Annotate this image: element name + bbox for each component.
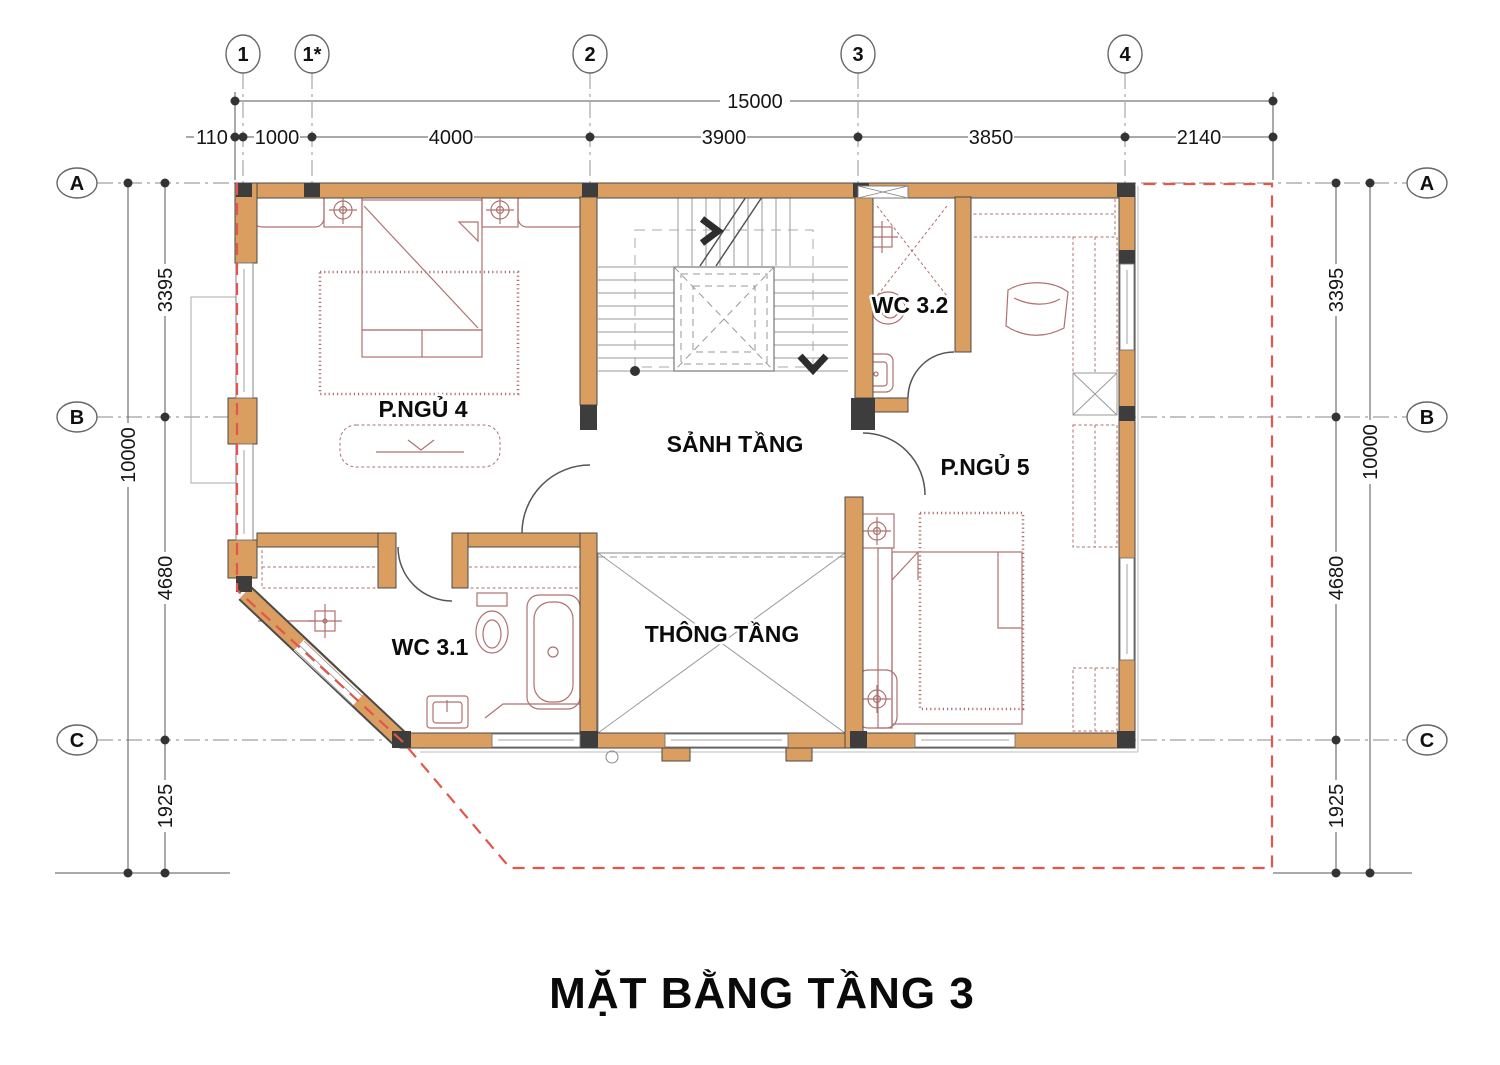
room-label-bedroom5: P.NGỦ 5 — [940, 452, 1029, 480]
svg-text:15000: 15000 — [727, 91, 783, 113]
grid-bubble-row-b-right: B — [1407, 402, 1447, 432]
room-label-hall: SẢNH TẦNG — [667, 429, 804, 457]
svg-text:2140: 2140 — [1177, 127, 1222, 149]
grid-bubble-row-a-right: A — [1407, 168, 1447, 198]
wall-pier-tab — [786, 748, 812, 761]
svg-text:3900: 3900 — [702, 127, 747, 149]
wall-pier — [378, 533, 396, 588]
wall-pier-tab — [662, 748, 690, 761]
grid-bubble-row-c-left: C — [57, 725, 97, 755]
wall-top — [235, 183, 1135, 198]
svg-text:10000: 10000 — [1360, 424, 1382, 480]
balcony-outline — [191, 297, 236, 483]
svg-text:4000: 4000 — [429, 127, 474, 149]
grid-bubble-col-4: 4 — [1108, 35, 1142, 73]
svg-text:4680: 4680 — [1326, 556, 1348, 601]
svg-text:10000: 10000 — [118, 427, 140, 483]
room-label-wc32: WC 3.2 — [872, 292, 949, 318]
svg-text:3: 3 — [852, 44, 863, 66]
wall-g3-upper — [855, 197, 873, 398]
drawing-title: MẶT BẰNG TẦNG 3 — [549, 968, 975, 1018]
grid-bubble-row-c-right: C — [1407, 725, 1447, 755]
grid-bubble-col-2: 2 — [573, 35, 607, 73]
dimension-total-width: 15000 — [720, 90, 790, 113]
vent-icon — [858, 186, 908, 198]
wall-g2-lower — [580, 533, 597, 748]
svg-text:C: C — [1420, 730, 1434, 752]
svg-text:4680: 4680 — [155, 556, 177, 601]
grid-bubble-row-b-left: B — [57, 402, 97, 432]
svg-text:3850: 3850 — [969, 127, 1014, 149]
room-label-bedroom4: P.NGỦ 4 — [378, 394, 467, 422]
wall-pier — [452, 533, 468, 588]
wall-left-pier — [228, 398, 257, 444]
svg-text:A: A — [70, 173, 84, 195]
grid-bubble-col-1s: 1* — [295, 35, 329, 73]
svg-text:B: B — [70, 407, 84, 429]
svg-text:4: 4 — [1119, 44, 1131, 66]
svg-text:110: 110 — [196, 127, 228, 149]
wall-closet-row — [452, 533, 580, 547]
svg-text:1*: 1* — [303, 44, 322, 66]
floor-drain-icon — [606, 751, 618, 763]
wall-g3-lower — [845, 497, 863, 748]
svg-text:1000: 1000 — [255, 127, 300, 149]
stair-start-dot — [630, 366, 640, 376]
svg-text:1: 1 — [237, 44, 248, 66]
wall-wc32-bottom — [873, 398, 908, 412]
grid-bubble-col-1: 1 — [226, 35, 260, 73]
dimension-right-segments: 3395 4680 1925 10000 — [1325, 264, 1382, 832]
wall-g2-upper — [580, 197, 597, 405]
svg-text:3395: 3395 — [1326, 268, 1348, 313]
svg-text:1925: 1925 — [155, 784, 177, 829]
svg-text:2: 2 — [584, 44, 595, 66]
svg-text:B: B — [1420, 407, 1434, 429]
svg-text:1925: 1925 — [1326, 784, 1348, 829]
dimension-left-segments: 3395 4680 1925 10000 — [117, 264, 177, 832]
grid-bubble-row-a-left: A — [57, 168, 97, 198]
svg-text:C: C — [70, 730, 84, 752]
room-label-void: THÔNG TẦNG — [645, 620, 800, 647]
wall-wc32-right — [955, 197, 971, 352]
floor-plan-drawing: 15000 110 1000 4000 3900 3850 2140 3395 … — [0, 0, 1500, 1060]
svg-text:A: A — [1420, 173, 1434, 195]
room-label-wc31: WC 3.1 — [392, 634, 469, 660]
grid-bubble-col-3: 3 — [841, 35, 875, 73]
floor-plan-page: 15000 110 1000 4000 3900 3850 2140 3395 … — [0, 0, 1500, 1060]
svg-text:3395: 3395 — [155, 268, 177, 313]
wall-left-pier — [228, 540, 257, 578]
wall-closet-row — [257, 533, 396, 547]
